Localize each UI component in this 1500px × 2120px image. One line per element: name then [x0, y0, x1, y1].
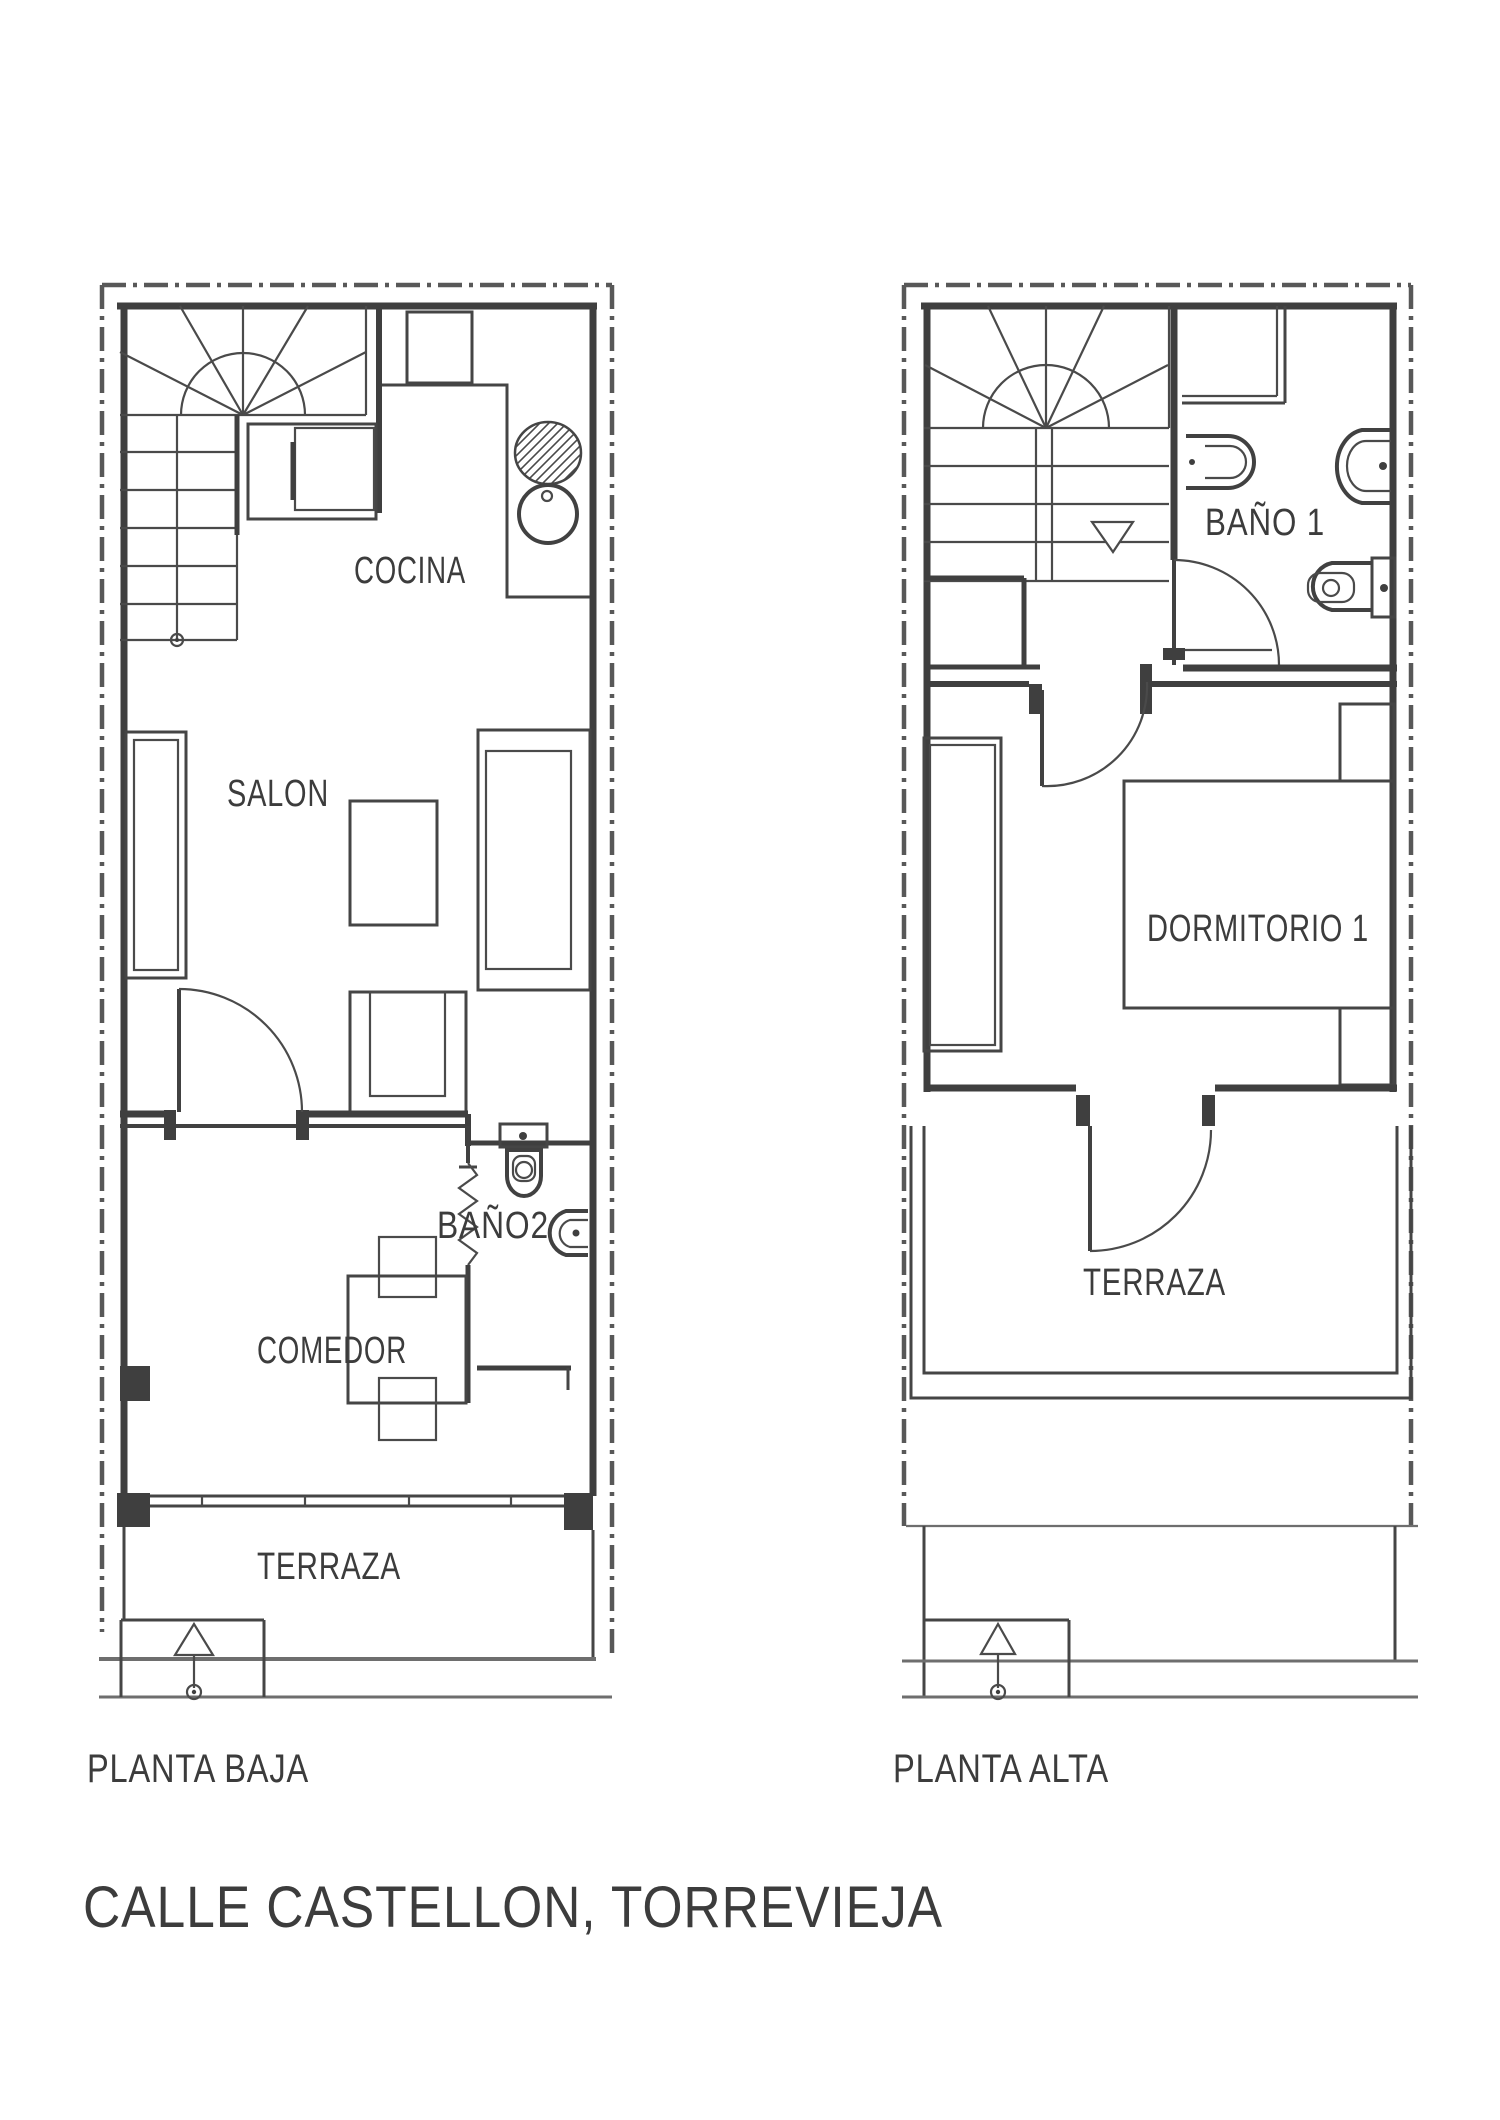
dormitorio1-label: DORMITORIO 1: [1147, 908, 1369, 950]
comedor-label: COMEDOR: [257, 1330, 407, 1372]
bano2-label: BAÑO2: [437, 1204, 549, 1247]
drawing-title: CALLE CASTELLON, TORREVIEJA: [83, 1875, 943, 1940]
paper-background: [0, 0, 1500, 2120]
cocina-label: COCINA: [354, 550, 466, 592]
floor-plan-canvas: COCINA SALON COMEDOR BAÑO2 TERRAZA PLANT…: [0, 0, 1500, 2120]
drawing-sheet: COCINA SALON COMEDOR BAÑO2 TERRAZA PLANT…: [0, 0, 1500, 2120]
bano1-label: BAÑO 1: [1205, 501, 1325, 544]
terraza-ground-label: TERRAZA: [257, 1546, 401, 1588]
terraza-upper-label: TERRAZA: [1083, 1262, 1226, 1304]
upper-floor-title: PLANTA ALTA: [893, 1747, 1109, 1791]
sink-faucet: [542, 491, 552, 501]
salon-label: SALON: [227, 773, 329, 815]
ground-floor-title: PLANTA BAJA: [87, 1747, 309, 1791]
sink-drainer: [515, 422, 581, 484]
wall-pillar-left: [120, 1366, 150, 1401]
